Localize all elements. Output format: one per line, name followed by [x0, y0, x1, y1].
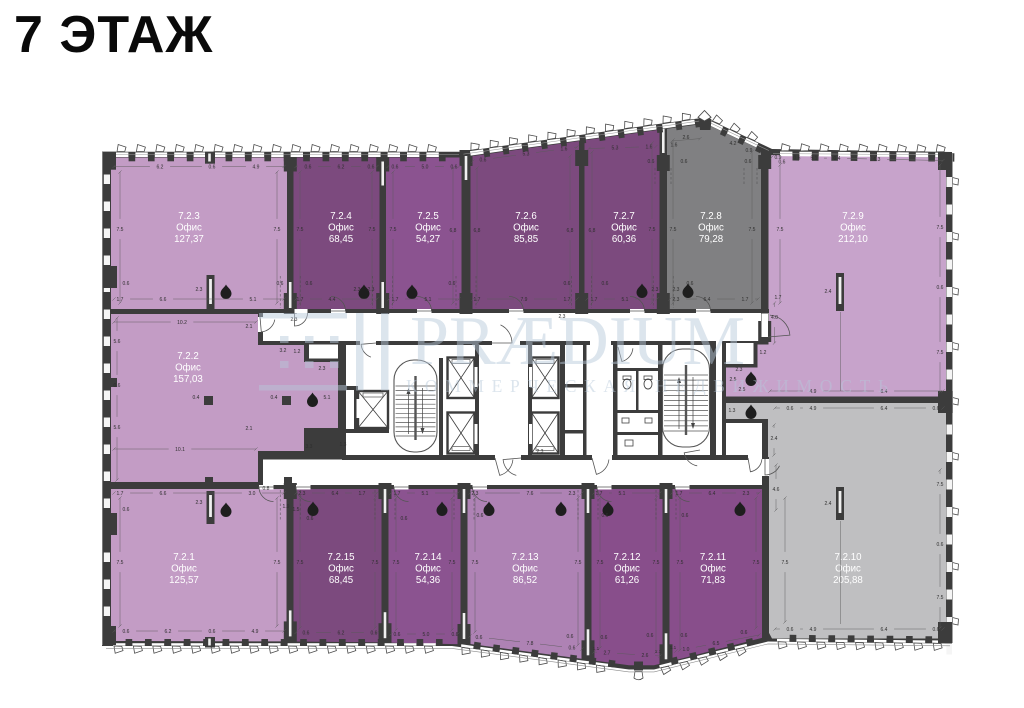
svg-text:7.2.8: 7.2.8 — [700, 211, 722, 222]
svg-text:7.2.1: 7.2.1 — [173, 552, 195, 563]
svg-text:2.4: 2.4 — [825, 289, 832, 295]
svg-text:5.1: 5.1 — [422, 491, 429, 497]
svg-text:2.3: 2.3 — [368, 287, 375, 293]
svg-text:7.5: 7.5 — [670, 227, 677, 233]
svg-text:2.1: 2.1 — [246, 426, 253, 432]
svg-text:7.5: 7.5 — [753, 560, 760, 566]
svg-text:7.5: 7.5 — [472, 560, 479, 566]
svg-text:7.5: 7.5 — [297, 227, 304, 233]
svg-text:7.5: 7.5 — [597, 560, 604, 566]
svg-text:1.2: 1.2 — [760, 350, 767, 356]
svg-text:10.1: 10.1 — [175, 447, 185, 453]
svg-text:0.6: 0.6 — [477, 513, 484, 519]
svg-text:5.0: 5.0 — [422, 164, 429, 170]
svg-text:2.6: 2.6 — [642, 653, 649, 659]
svg-text:5.1: 5.1 — [324, 395, 331, 401]
svg-text:Офис: Офис — [512, 563, 538, 574]
svg-text:125,57: 125,57 — [169, 575, 199, 586]
svg-text:5.3: 5.3 — [523, 152, 530, 158]
svg-text:4.2: 4.2 — [730, 141, 737, 147]
svg-text:6.2: 6.2 — [157, 164, 164, 170]
svg-text:0.6: 0.6 — [687, 281, 694, 287]
svg-text:157,03: 157,03 — [173, 374, 203, 385]
svg-text:7.5: 7.5 — [782, 560, 789, 566]
svg-text:6,8: 6,8 — [567, 228, 574, 234]
svg-text:7.5: 7.5 — [749, 227, 756, 233]
svg-text:0.6: 0.6 — [392, 164, 399, 170]
svg-text:6,8: 6,8 — [589, 228, 596, 234]
svg-text:0.6: 0.6 — [123, 629, 130, 635]
svg-text:5.1: 5.1 — [619, 491, 626, 497]
svg-text:7.5: 7.5 — [297, 560, 304, 566]
svg-text:5.6: 5.6 — [114, 425, 121, 431]
svg-text:0.6: 0.6 — [449, 281, 456, 287]
svg-text:2.3: 2.3 — [652, 287, 659, 293]
svg-text:7.5: 7.5 — [369, 227, 376, 233]
svg-text:6.4: 6.4 — [704, 297, 711, 303]
svg-text:0.4: 0.4 — [271, 395, 278, 401]
svg-text:4.9: 4.9 — [253, 164, 260, 170]
svg-text:1.7: 1.7 — [596, 491, 603, 497]
svg-text:7.5: 7.5 — [274, 227, 281, 233]
svg-text:60,36: 60,36 — [612, 234, 636, 245]
svg-text:1.7: 1.7 — [474, 297, 481, 303]
svg-text:Офис: Офис — [415, 563, 441, 574]
svg-text:0.6: 0.6 — [937, 542, 944, 548]
svg-text:Офис: Офис — [611, 222, 637, 233]
svg-text:6.4: 6.4 — [709, 491, 716, 497]
svg-text:2.4: 2.4 — [771, 436, 778, 442]
svg-text:0.6: 0.6 — [602, 281, 609, 287]
svg-text:0.6: 0.6 — [371, 630, 378, 636]
svg-text:6,8: 6,8 — [474, 228, 481, 234]
svg-text:0.6: 0.6 — [933, 627, 940, 633]
svg-text:1.1: 1.1 — [593, 646, 600, 651]
svg-text:1.6: 1.6 — [646, 145, 653, 151]
svg-text:0.6: 0.6 — [787, 627, 794, 633]
svg-text:205,88: 205,88 — [833, 575, 863, 586]
svg-text:54,36: 54,36 — [416, 575, 440, 586]
svg-text:5.1: 5.1 — [622, 297, 629, 303]
svg-text:2.4: 2.4 — [825, 501, 832, 507]
svg-text:0.6: 0.6 — [567, 634, 574, 640]
svg-text:7.5: 7.5 — [274, 560, 281, 566]
svg-text:0.6: 0.6 — [209, 164, 216, 170]
svg-text:0.6: 0.6 — [476, 635, 483, 641]
svg-text:7.2.2: 7.2.2 — [177, 351, 199, 362]
svg-text:1.2: 1.2 — [294, 349, 301, 355]
svg-text:0.6: 0.6 — [305, 164, 312, 170]
svg-text:7.5: 7.5 — [575, 560, 582, 566]
svg-text:10.2: 10.2 — [177, 320, 187, 326]
svg-text:0.6: 0.6 — [648, 159, 655, 165]
svg-text:Офис: Офис — [171, 563, 197, 574]
svg-text:0.6: 0.6 — [307, 516, 314, 522]
svg-text:1.7: 1.7 — [775, 295, 782, 301]
svg-text:Офис: Офис — [175, 362, 201, 373]
svg-text:1.6: 1.6 — [671, 143, 678, 149]
svg-text:5.3: 5.3 — [612, 146, 619, 152]
svg-text:2.3: 2.3 — [743, 491, 750, 497]
svg-text:7.5: 7.5 — [937, 482, 944, 488]
svg-text:0.6: 0.6 — [209, 629, 216, 635]
svg-text:1.1: 1.1 — [655, 649, 662, 654]
svg-text:6.4: 6.4 — [881, 406, 888, 412]
svg-text:7.2.5: 7.2.5 — [417, 211, 439, 222]
svg-text:127,37: 127,37 — [174, 234, 204, 245]
svg-text:5.6: 5.6 — [114, 339, 121, 345]
svg-text:6.4: 6.4 — [332, 491, 339, 497]
svg-text:1.7: 1.7 — [742, 297, 749, 303]
svg-text:0.6: 0.6 — [937, 285, 944, 291]
svg-text:2.3: 2.3 — [299, 491, 306, 497]
svg-text:Офис: Офис — [698, 222, 724, 233]
svg-text:4.4: 4.4 — [329, 297, 336, 303]
svg-text:0.6: 0.6 — [933, 406, 940, 412]
svg-text:Офис: Офис — [700, 563, 726, 574]
svg-text:2.3: 2.3 — [569, 491, 576, 497]
svg-text:0.6: 0.6 — [745, 159, 752, 165]
svg-text:0.6: 0.6 — [394, 632, 401, 638]
svg-text:6.6: 6.6 — [160, 297, 167, 303]
svg-text:0.4: 0.4 — [834, 156, 841, 162]
svg-text:0.6: 0.6 — [569, 646, 576, 652]
svg-text:5.1: 5.1 — [811, 156, 818, 162]
svg-text:7.5: 7.5 — [390, 227, 397, 233]
svg-text:0.6: 0.6 — [123, 281, 130, 287]
svg-text:86,52: 86,52 — [513, 575, 537, 586]
svg-text:68,45: 68,45 — [329, 234, 353, 245]
svg-text:Офис: Офис — [513, 222, 539, 233]
svg-text:7.2.6: 7.2.6 — [515, 211, 537, 222]
svg-text:Офис: Офис — [614, 563, 640, 574]
svg-text:1.3: 1.3 — [340, 442, 347, 448]
svg-text:61,26: 61,26 — [615, 575, 639, 586]
svg-text:2.3: 2.3 — [673, 287, 680, 293]
svg-text:1.7: 1.7 — [676, 491, 683, 497]
svg-text:0.6: 0.6 — [564, 281, 571, 287]
svg-text:7.5: 7.5 — [117, 227, 124, 233]
svg-text:2.3: 2.3 — [354, 287, 361, 293]
svg-text:0.6: 0.6 — [682, 513, 689, 519]
svg-text:71,83: 71,83 — [701, 575, 725, 586]
svg-text:85,85: 85,85 — [514, 234, 538, 245]
svg-text:6.2: 6.2 — [338, 164, 345, 170]
svg-text:4.9: 4.9 — [252, 629, 259, 635]
svg-text:7.2.11: 7.2.11 — [700, 552, 726, 563]
svg-text:0.6: 0.6 — [602, 513, 609, 519]
svg-text:1.7: 1.7 — [117, 297, 124, 303]
svg-text:7.9: 7.9 — [521, 297, 528, 303]
svg-text:6.2: 6.2 — [338, 630, 345, 636]
svg-text:6.3: 6.3 — [874, 157, 881, 163]
svg-text:2.1: 2.1 — [246, 324, 253, 330]
svg-text:1.6: 1.6 — [561, 147, 568, 153]
svg-text:Офис: Офис — [835, 563, 861, 574]
svg-text:7.5: 7.5 — [649, 227, 656, 233]
svg-text:1.0: 1.0 — [683, 647, 690, 653]
svg-text:7.5: 7.5 — [393, 560, 400, 566]
svg-text:5.1: 5.1 — [425, 297, 432, 303]
svg-text:2.3: 2.3 — [196, 287, 203, 293]
svg-text:4.6: 4.6 — [773, 487, 780, 493]
svg-text:7.2.14: 7.2.14 — [415, 552, 443, 563]
svg-text:7.2.9: 7.2.9 — [842, 211, 864, 222]
svg-text:5.0: 5.0 — [423, 632, 430, 638]
svg-text:0.6: 0.6 — [114, 383, 121, 389]
svg-text:68,45: 68,45 — [329, 575, 353, 586]
svg-text:7.5: 7.5 — [777, 227, 784, 233]
svg-text:2.3: 2.3 — [537, 449, 544, 455]
svg-text:PRÆDIUM: PRÆDIUM — [410, 303, 745, 380]
svg-text:7.2.3: 7.2.3 — [178, 211, 200, 222]
svg-text:1.7: 1.7 — [564, 297, 571, 303]
svg-text:Офис: Офис — [176, 222, 202, 233]
svg-text:7.5: 7.5 — [449, 560, 456, 566]
svg-text:1.7: 1.7 — [359, 491, 366, 497]
svg-text:0.6: 0.6 — [480, 158, 487, 164]
svg-text:79,28: 79,28 — [699, 234, 723, 245]
svg-text:1.3: 1.3 — [729, 408, 736, 414]
svg-text:5.1: 5.1 — [250, 297, 257, 303]
svg-text:7.2.10: 7.2.10 — [835, 552, 863, 563]
svg-text:Офис: Офис — [415, 222, 441, 233]
svg-text:6.4: 6.4 — [881, 627, 888, 633]
svg-text:6.6: 6.6 — [160, 491, 167, 497]
svg-text:7.5: 7.5 — [372, 560, 379, 566]
svg-text:Офис: Офис — [840, 222, 866, 233]
svg-text:7.5: 7.5 — [653, 560, 660, 566]
svg-text:0.8: 0.8 — [263, 486, 270, 492]
svg-text:6,8: 6,8 — [450, 228, 457, 234]
svg-text:0.6: 0.6 — [681, 633, 688, 639]
svg-text:7.2.13: 7.2.13 — [512, 552, 539, 563]
svg-text:3.2: 3.2 — [280, 348, 287, 354]
svg-text:0.6: 0.6 — [794, 155, 801, 161]
svg-text:0.6: 0.6 — [123, 507, 130, 513]
svg-text:7.2.15: 7.2.15 — [328, 552, 355, 563]
svg-text:0.6: 0.6 — [647, 633, 654, 639]
svg-text:Офис: Офис — [328, 563, 354, 574]
svg-text:1.9: 1.9 — [283, 504, 290, 510]
svg-text:0.6: 0.6 — [306, 281, 313, 287]
svg-text:2.3: 2.3 — [673, 297, 680, 303]
svg-text:1.7: 1.7 — [394, 491, 401, 497]
svg-text:0.6: 0.6 — [368, 164, 375, 170]
svg-text:3.0: 3.0 — [249, 491, 256, 497]
svg-text:54,27: 54,27 — [416, 234, 440, 245]
svg-text:7.6: 7.6 — [527, 491, 534, 497]
svg-text:0.6: 0.6 — [601, 635, 608, 641]
svg-text:7 ЭТАЖ: 7 ЭТАЖ — [14, 6, 213, 64]
svg-text:7.5: 7.5 — [937, 350, 944, 356]
svg-text:Офис: Офис — [328, 222, 354, 233]
svg-text:3.3: 3.3 — [306, 444, 313, 450]
svg-text:0.6: 0.6 — [303, 630, 310, 636]
svg-text:7.2.4: 7.2.4 — [330, 211, 352, 222]
svg-text:2.3: 2.3 — [472, 491, 479, 497]
svg-text:2.7: 2.7 — [604, 651, 611, 657]
svg-text:4.9: 4.9 — [810, 406, 817, 412]
svg-text:2.3: 2.3 — [319, 366, 326, 372]
svg-text:7.2.12: 7.2.12 — [614, 552, 641, 563]
svg-text:0.6: 0.6 — [787, 406, 794, 412]
svg-text:0.6: 0.6 — [681, 159, 688, 165]
svg-text:212,10: 212,10 — [838, 234, 868, 245]
svg-text:6.2: 6.2 — [165, 629, 172, 635]
svg-text:0.4: 0.4 — [193, 395, 200, 401]
svg-text:7.8: 7.8 — [527, 641, 534, 647]
svg-text:0.6: 0.6 — [401, 516, 408, 522]
svg-text:2.3: 2.3 — [196, 500, 203, 506]
svg-text:1.7: 1.7 — [117, 491, 124, 497]
svg-text:7.5: 7.5 — [937, 225, 944, 231]
svg-text:1.1: 1.1 — [670, 645, 677, 650]
svg-text:7.5: 7.5 — [117, 560, 124, 566]
svg-text:0.6: 0.6 — [452, 632, 459, 638]
svg-text:6.5: 6.5 — [713, 641, 720, 647]
svg-text:0.9: 0.9 — [775, 155, 782, 161]
svg-text:1.5: 1.5 — [293, 507, 300, 513]
svg-text:0.9: 0.9 — [746, 148, 753, 154]
svg-text:4.0: 4.0 — [771, 315, 778, 321]
svg-text:4.9: 4.9 — [810, 627, 817, 633]
svg-text:7.5: 7.5 — [677, 560, 684, 566]
svg-text:7.5: 7.5 — [937, 595, 944, 601]
svg-text:0.6: 0.6 — [741, 630, 748, 636]
svg-text:7.2.7: 7.2.7 — [613, 211, 635, 222]
